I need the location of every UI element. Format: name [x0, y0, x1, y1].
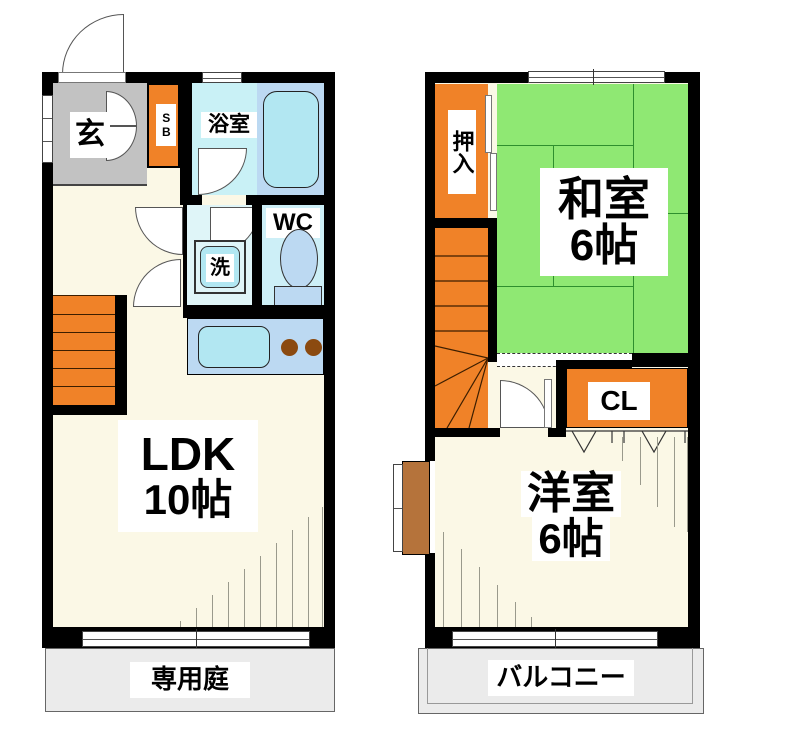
washitsu-name: 和室	[558, 175, 650, 223]
bay-window-box	[402, 461, 430, 555]
cl-folding-doors-icon	[566, 430, 688, 456]
washitsu-size: 6帖	[570, 223, 638, 269]
oshiire-label: 押入	[448, 110, 476, 194]
washitsu-label: 和室 6帖	[540, 168, 668, 276]
floorplan: 玄 SB 浴室 洗 WC LDK	[0, 0, 800, 751]
oshiire-slider-top	[485, 95, 492, 153]
bathtub-icon	[263, 91, 319, 188]
hall-bottom-wall-left	[425, 428, 500, 437]
bath-washroom-wall-left	[180, 195, 202, 205]
ldk-name: LDK	[141, 430, 236, 478]
youshitsu-name: 洋室	[521, 471, 621, 517]
floor1-stairs	[53, 295, 115, 406]
shoebox-label: SB	[156, 104, 176, 146]
floor1-stairs-bottom-wall	[53, 405, 127, 415]
kitchen-top-wall	[183, 305, 335, 318]
youshitsu-label: 洋室 6帖	[500, 460, 642, 572]
washitsu-top-window	[528, 71, 665, 83]
burner-left-icon	[281, 339, 298, 356]
bathroom-label: 浴室	[201, 112, 257, 138]
ldk-label: LDK 10帖	[118, 420, 258, 532]
burner-right-icon	[305, 339, 322, 356]
floor2-stairs-right-wall	[488, 218, 497, 362]
entrance-door-arc-icon	[62, 14, 124, 74]
garden-label: 専用庭	[130, 662, 250, 698]
hall-room-door-leaf	[544, 379, 552, 428]
genkan-label: 玄	[70, 112, 110, 158]
bath-washroom-wall-right	[246, 195, 335, 205]
balcony-label: バルコニー	[488, 660, 634, 696]
genkan-side-window	[42, 95, 53, 163]
hall-bottom-wall-right	[548, 428, 566, 437]
toilet-bowl-icon	[280, 229, 318, 289]
floor1-stairs-right-wall	[115, 295, 127, 415]
bathroom-top-window	[202, 72, 242, 83]
stairs-winder-lines-icon	[435, 228, 488, 428]
ldk-window-center-tick	[196, 629, 197, 649]
toilet-tank-icon	[274, 286, 322, 306]
hall-cl-divider-wall	[556, 360, 566, 428]
youshitsu-window-center-tick	[555, 629, 556, 649]
wc-left-wall	[252, 205, 262, 312]
cl-top-wall	[566, 360, 632, 368]
youshitsu-size: 6帖	[532, 517, 609, 561]
washer-label: 洗	[206, 254, 234, 282]
floor2-stairs	[435, 228, 488, 428]
bay-window-glass	[393, 464, 403, 552]
bath-left-wall	[180, 83, 192, 200]
washitsu-window-center-tick	[593, 69, 594, 85]
ldk-size: 10帖	[144, 478, 233, 522]
washitsu-bottom-wall	[632, 353, 688, 367]
oshiire-slider-bottom	[490, 153, 497, 211]
entrance-door-threshold	[58, 72, 126, 83]
cl-label: CL	[588, 382, 650, 420]
kitchen-sink-icon	[198, 326, 270, 368]
